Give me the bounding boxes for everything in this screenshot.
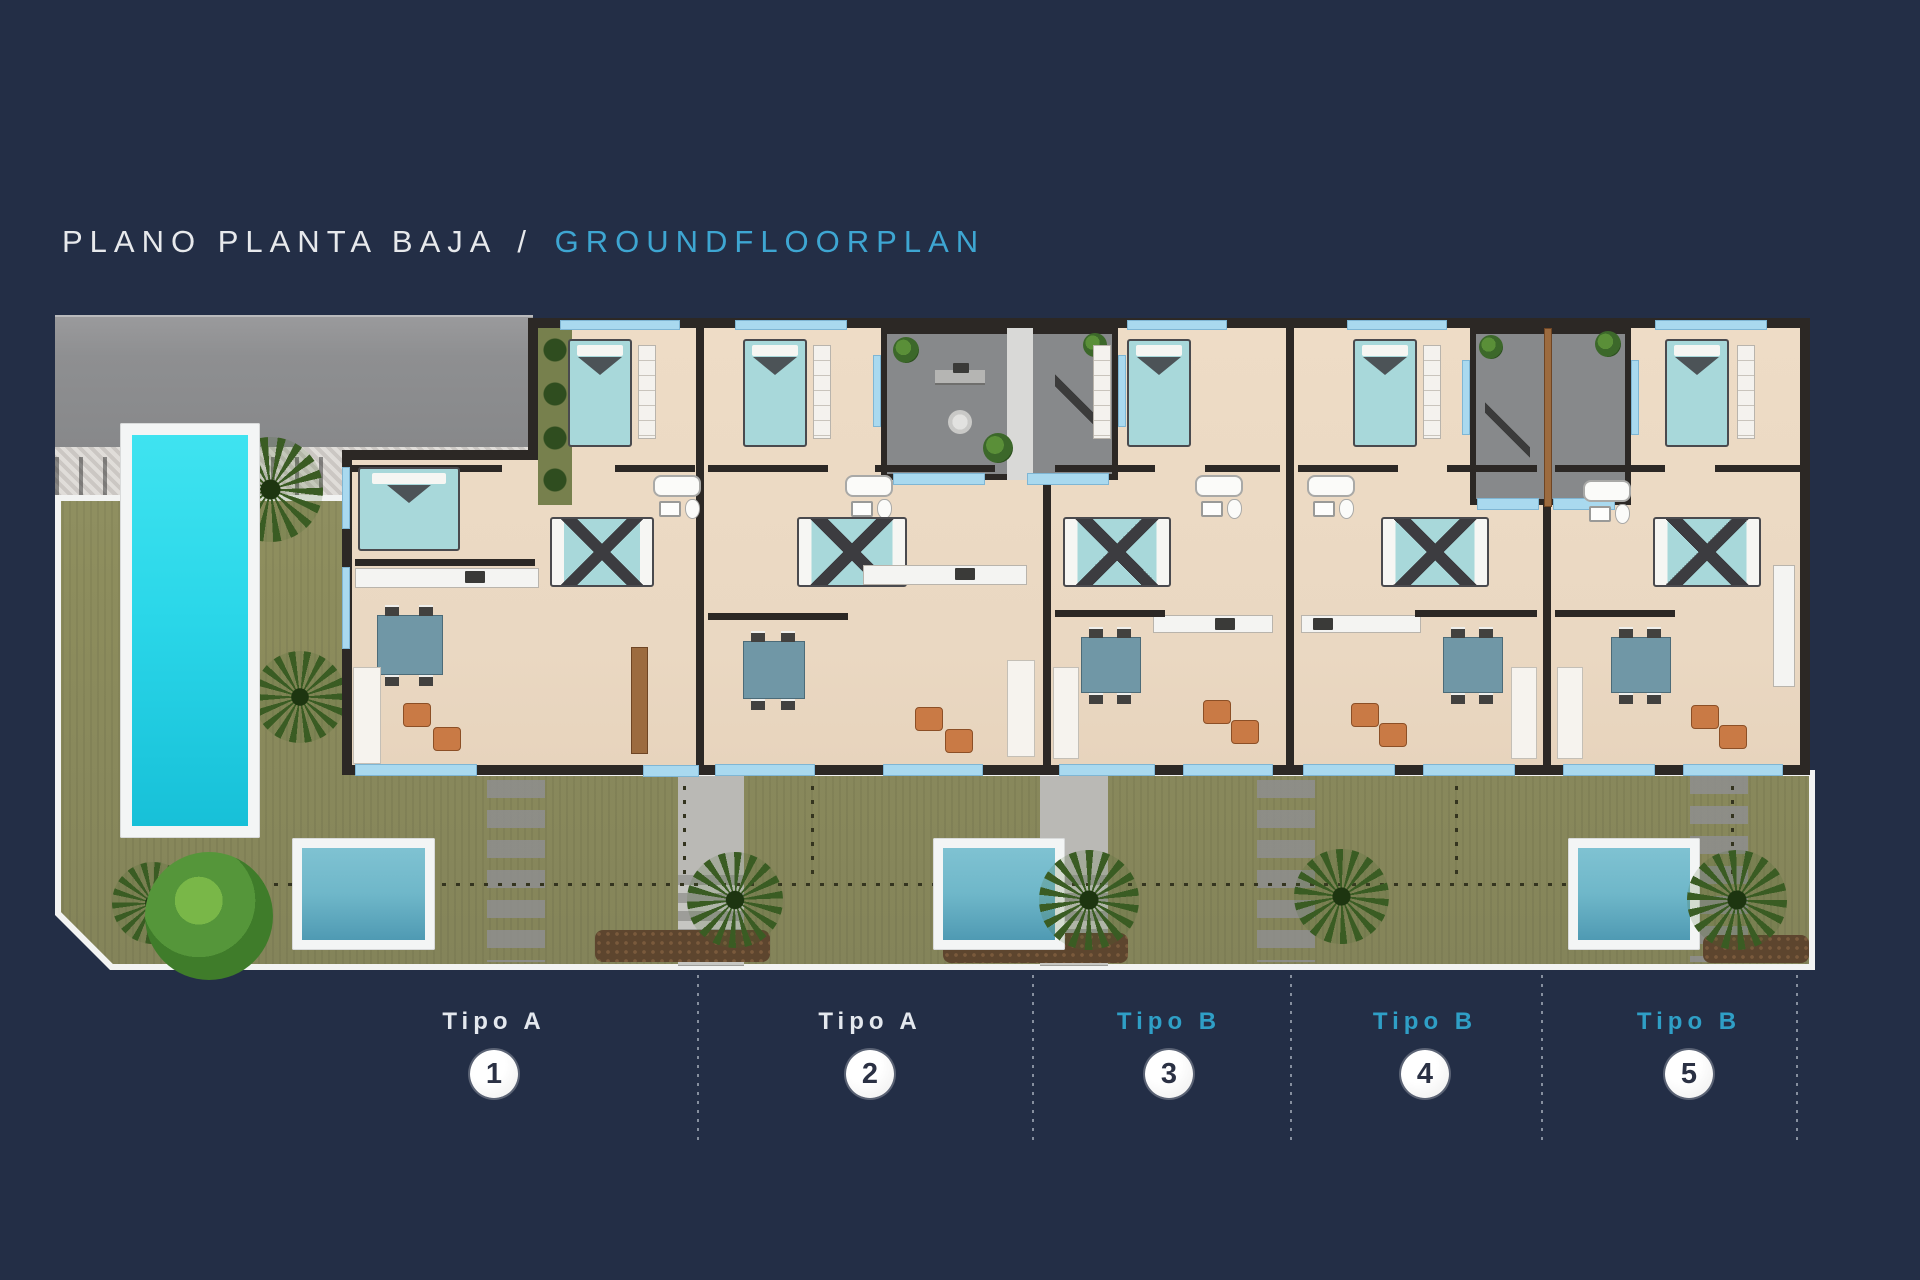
chair-icon [1117,627,1131,638]
chair-icon [1479,693,1493,704]
armchair-icon [915,707,943,731]
bathtub-icon [1307,475,1355,497]
toilet-icon [1615,504,1630,524]
sofa-icon [1557,667,1583,759]
window-strip [1027,473,1109,485]
interior-wall [1205,465,1280,472]
armchair-icon [1379,723,1407,747]
sofa-icon [353,667,381,764]
title-english: GROUNDFLOORPLAN [555,224,986,259]
terrace-window-strip [883,764,983,776]
window-strip [893,473,985,485]
bathtub-icon [845,475,893,497]
interior-wall [355,559,535,566]
armchair-icon [1719,725,1747,749]
dining-table-icon [1443,637,1503,693]
terrace-window-strip [1303,764,1395,776]
cooktop-icon [1313,618,1333,630]
chair-icon [1089,693,1103,704]
armchair-icon [945,729,973,753]
interior-wall [1555,610,1675,617]
terrace-window-strip [1683,764,1783,776]
chair-icon [1117,693,1131,704]
interior-wall [708,465,828,472]
patio-plant-icon [1595,331,1621,357]
sofa-icon [1053,667,1079,759]
cooktop-icon [1215,618,1235,630]
sofa-icon [1007,660,1035,757]
patio-entry-path [1007,328,1033,480]
cooktop-icon [955,568,975,580]
bed-icon [1127,339,1191,447]
chair-icon [781,699,795,710]
unit-label-2: Tipo A 2 [790,1008,950,1098]
interior-wall [708,613,848,620]
wardrobe [638,345,656,439]
terrace-window-strip [1183,764,1273,776]
kitchen-counter [1153,615,1273,633]
armchair-icon [1351,703,1379,727]
window-strip [1631,360,1639,435]
bathtub-icon [653,475,701,497]
kitchen-counter [1773,565,1795,687]
interior-wall [615,465,695,472]
label-divider-dotted [1290,975,1292,1142]
floor-plan-page: PLANO PLANTA BAJA / GROUNDFLOORPLAN Tipo… [0,0,1920,1280]
label-divider-dotted [1032,975,1034,1142]
window-strip [342,467,350,529]
sink-icon [659,501,681,517]
interior-wall [1715,465,1800,472]
sink-icon [1201,501,1223,517]
window-strip [342,567,350,649]
bed-icon [743,339,807,447]
dining-table-icon [1611,637,1671,693]
chair-icon [781,631,795,642]
unit-number-badge: 5 [1665,1050,1713,1098]
unit-label-5: Tipo B 5 [1609,1008,1769,1098]
unit-label-4: Tipo B 4 [1345,1008,1505,1098]
patio-plant-icon [1479,335,1503,359]
chair-icon [1647,693,1661,704]
unit-divider-wall [1286,328,1294,765]
unit-divider-wall [696,328,704,765]
terrace-window-strip [1059,764,1155,776]
label-divider-dotted [1541,975,1543,1142]
bed-icon [1665,339,1729,447]
chair-icon [1451,693,1465,704]
entry-planter [538,328,572,505]
unit-divider-wall [1543,505,1551,765]
window-strip [1655,320,1767,330]
page-title: PLANO PLANTA BAJA / GROUNDFLOORPLAN [62,224,985,260]
kitchen-counter [863,565,1027,585]
unit-number-badge: 1 [470,1050,518,1098]
chair-icon [419,605,433,616]
unit-number-badge: 2 [846,1050,894,1098]
label-divider-dotted [697,975,699,1142]
unit-label-1: Tipo A 1 [414,1008,574,1098]
bed-icon [1353,339,1417,447]
window-strip [560,320,680,330]
window-strip [873,355,881,427]
unit-type-label: Tipo B [1089,1008,1249,1036]
chair-icon [1479,627,1493,638]
chair-icon [1619,627,1633,638]
armchair-icon [1231,720,1259,744]
chair-icon [751,631,765,642]
interior-wall [1298,465,1398,472]
dining-table-icon [377,615,443,675]
window-strip [735,320,847,330]
cooktop-icon [465,571,485,583]
unit-number-badge: 3 [1145,1050,1193,1098]
terrace-window-strip [643,765,699,777]
interior-wall [875,465,995,472]
bed-icon [358,467,460,551]
site-plan [55,315,1820,975]
wardrobe [813,345,831,439]
armchair-icon [1691,705,1719,729]
sink-icon [851,501,873,517]
armchair-icon [1203,700,1231,724]
bed-icon [568,339,632,447]
wardrobe [1423,345,1441,439]
terrace-window-strip [715,764,815,776]
unit-type-label: Tipo A [414,1008,574,1036]
patio-tv [953,363,969,373]
toilet-icon [1227,499,1242,519]
double-bed-icon [1653,517,1761,587]
chair-icon [1451,627,1465,638]
window-strip [1477,498,1539,510]
terrace-window-strip [355,764,477,776]
window-strip [1462,360,1470,435]
dining-table-icon [1081,637,1141,693]
double-bed-icon [1063,517,1171,587]
interior-wall [1415,610,1537,617]
gym-equipment-icon [1485,385,1530,475]
toilet-icon [877,499,892,519]
double-bed-icon [550,517,654,587]
chair-icon [385,675,399,686]
unit-type-label: Tipo A [790,1008,950,1036]
chair-icon [1619,693,1633,704]
toilet-icon [685,499,700,519]
terrace-window-strip [1563,764,1655,776]
chair-icon [385,605,399,616]
sink-icon [1313,501,1335,517]
patio-plant-icon [893,337,919,363]
window-strip [1118,355,1126,427]
toilet-icon [1339,499,1354,519]
patio-stone-table [948,410,972,434]
dining-table-icon [743,641,805,699]
sofa-icon [1511,667,1537,759]
interior-wall [1055,465,1155,472]
sink-icon [1589,506,1611,522]
double-bed-icon [1381,517,1489,587]
unit-type-label: Tipo B [1609,1008,1769,1036]
interior-wall [1447,465,1537,472]
armchair-icon [433,727,461,751]
window-strip [1127,320,1227,330]
chair-icon [1089,627,1103,638]
terrace-window-strip [1423,764,1515,776]
bathtub-icon [1583,480,1631,502]
wardrobe [1093,345,1111,439]
chair-icon [419,675,433,686]
window-strip [1347,320,1447,330]
unit-number-badge: 4 [1401,1050,1449,1098]
unit-divider-wall [1043,480,1051,765]
bathtub-icon [1195,475,1243,497]
patio-center-rail [1544,328,1552,507]
chair-icon [751,699,765,710]
building-interior-layer [55,315,1820,975]
interior-wall [1055,610,1165,617]
label-divider-dotted [1796,975,1798,1142]
wardrobe [1737,345,1755,439]
armchair-icon [403,703,431,727]
unit-type-label: Tipo B [1345,1008,1505,1036]
terrace-door-wood [631,647,648,754]
chair-icon [1647,627,1661,638]
patio-plant-icon [983,433,1013,463]
title-separator: / [511,224,539,259]
unit-label-3: Tipo B 3 [1089,1008,1249,1098]
title-spanish: PLANO PLANTA BAJA [62,224,496,259]
kitchen-counter [355,568,539,588]
interior-wall [1555,465,1665,472]
